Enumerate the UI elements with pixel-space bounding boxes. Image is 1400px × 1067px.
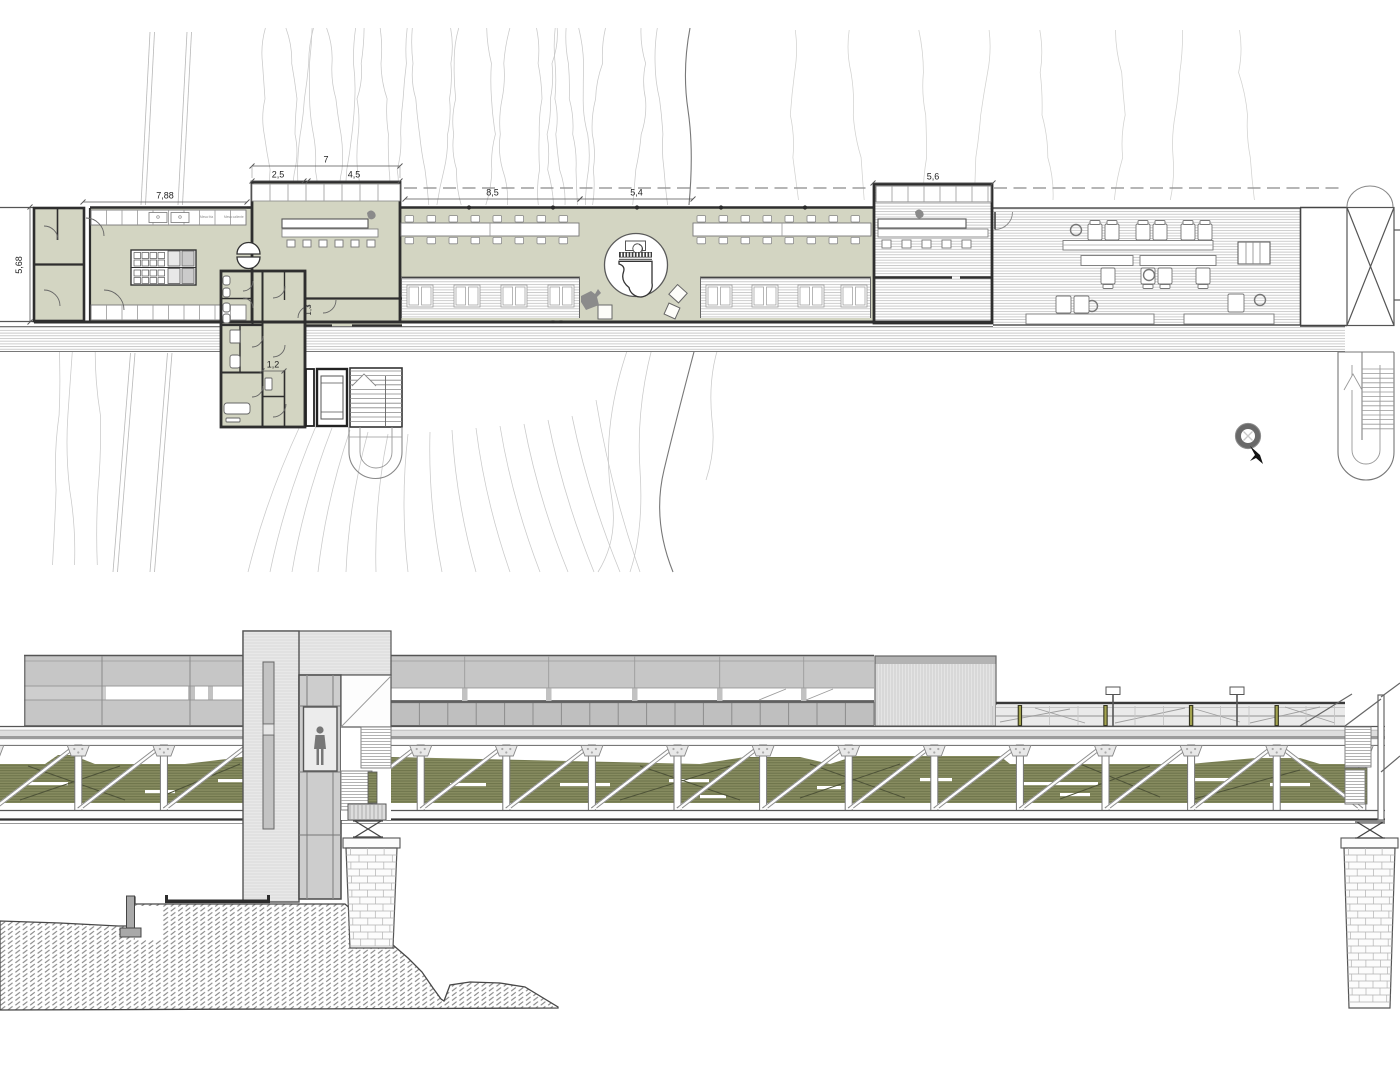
svg-text:1,2: 1,2 bbox=[267, 360, 280, 370]
svg-text:5,68: 5,68 bbox=[14, 256, 24, 274]
svg-text:5,6: 5,6 bbox=[927, 172, 940, 182]
svg-text:4,5: 4,5 bbox=[348, 170, 361, 180]
svg-text:8,5: 8,5 bbox=[486, 188, 499, 198]
svg-text:7: 7 bbox=[323, 155, 328, 165]
svg-text:5,4: 5,4 bbox=[630, 188, 643, 198]
svg-text:1,3: 1,3 bbox=[304, 304, 313, 316]
svg-text:Mesa fria: Mesa fria bbox=[200, 215, 213, 219]
svg-text:2,5: 2,5 bbox=[272, 170, 285, 180]
svg-text:Mesa caliente: Mesa caliente bbox=[224, 215, 244, 219]
svg-text:7,88: 7,88 bbox=[156, 191, 174, 201]
